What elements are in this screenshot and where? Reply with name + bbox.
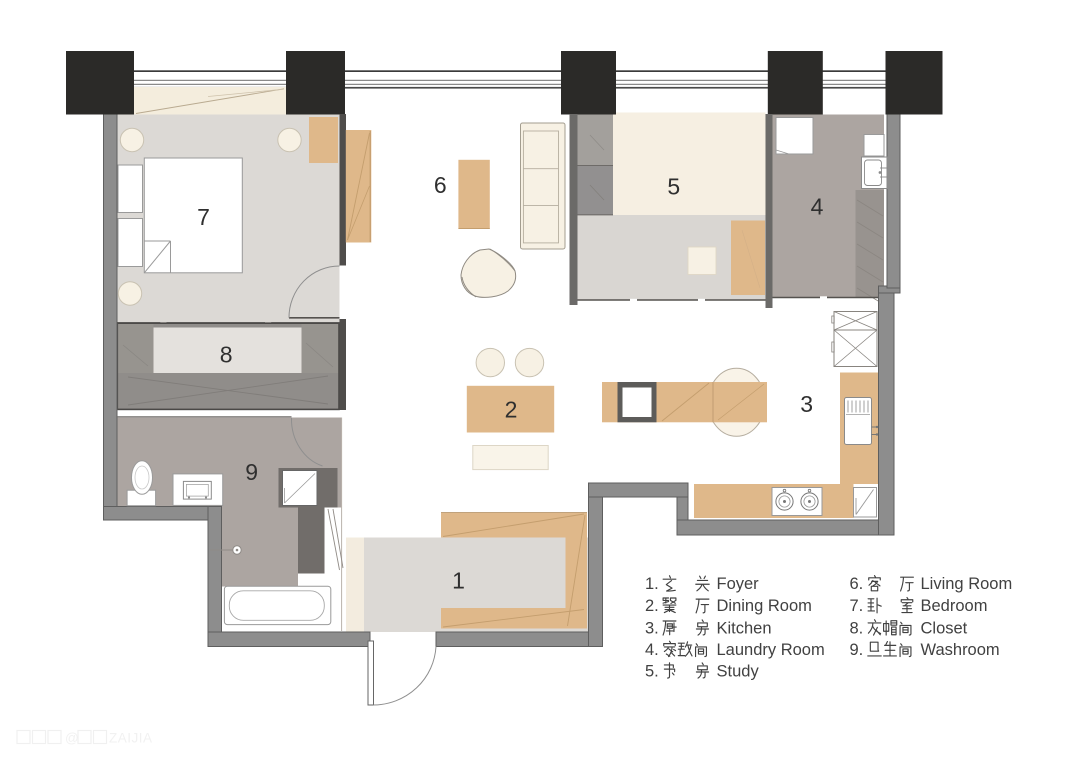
svg-text:2.: 2.	[645, 597, 659, 615]
svg-text:6: 6	[434, 172, 447, 198]
svg-text:Dining Room: Dining Room	[717, 597, 812, 615]
svg-text:Laundry Room: Laundry Room	[717, 641, 825, 659]
svg-text:6.: 6.	[850, 575, 864, 593]
svg-text:8: 8	[220, 342, 233, 368]
svg-text:5.: 5.	[645, 662, 659, 680]
svg-text:Bedroom: Bedroom	[921, 597, 988, 615]
svg-text:4.: 4.	[645, 641, 659, 659]
svg-text:Washroom: Washroom	[921, 641, 1000, 659]
svg-text:Kitchen: Kitchen	[717, 619, 772, 637]
svg-text:9.: 9.	[850, 641, 864, 659]
svg-text:3: 3	[800, 391, 813, 417]
svg-text:7: 7	[197, 204, 210, 230]
svg-text:Living Room: Living Room	[921, 575, 1013, 593]
svg-text:2: 2	[505, 397, 518, 423]
svg-text:4: 4	[811, 193, 824, 219]
svg-text:Closet: Closet	[921, 619, 968, 637]
svg-text:9: 9	[245, 459, 258, 485]
svg-text:5: 5	[667, 174, 680, 200]
svg-text:8.: 8.	[850, 619, 864, 637]
svg-text:1.: 1.	[645, 575, 659, 593]
svg-text:7.: 7.	[850, 597, 864, 615]
svg-text:1: 1	[452, 567, 465, 593]
svg-text:Study: Study	[717, 662, 760, 680]
svg-text:ZAIJIA: ZAIJIA	[109, 731, 153, 746]
svg-text:Foyer: Foyer	[717, 575, 760, 593]
svg-text:@: @	[65, 731, 79, 746]
svg-text:3.: 3.	[645, 619, 659, 637]
